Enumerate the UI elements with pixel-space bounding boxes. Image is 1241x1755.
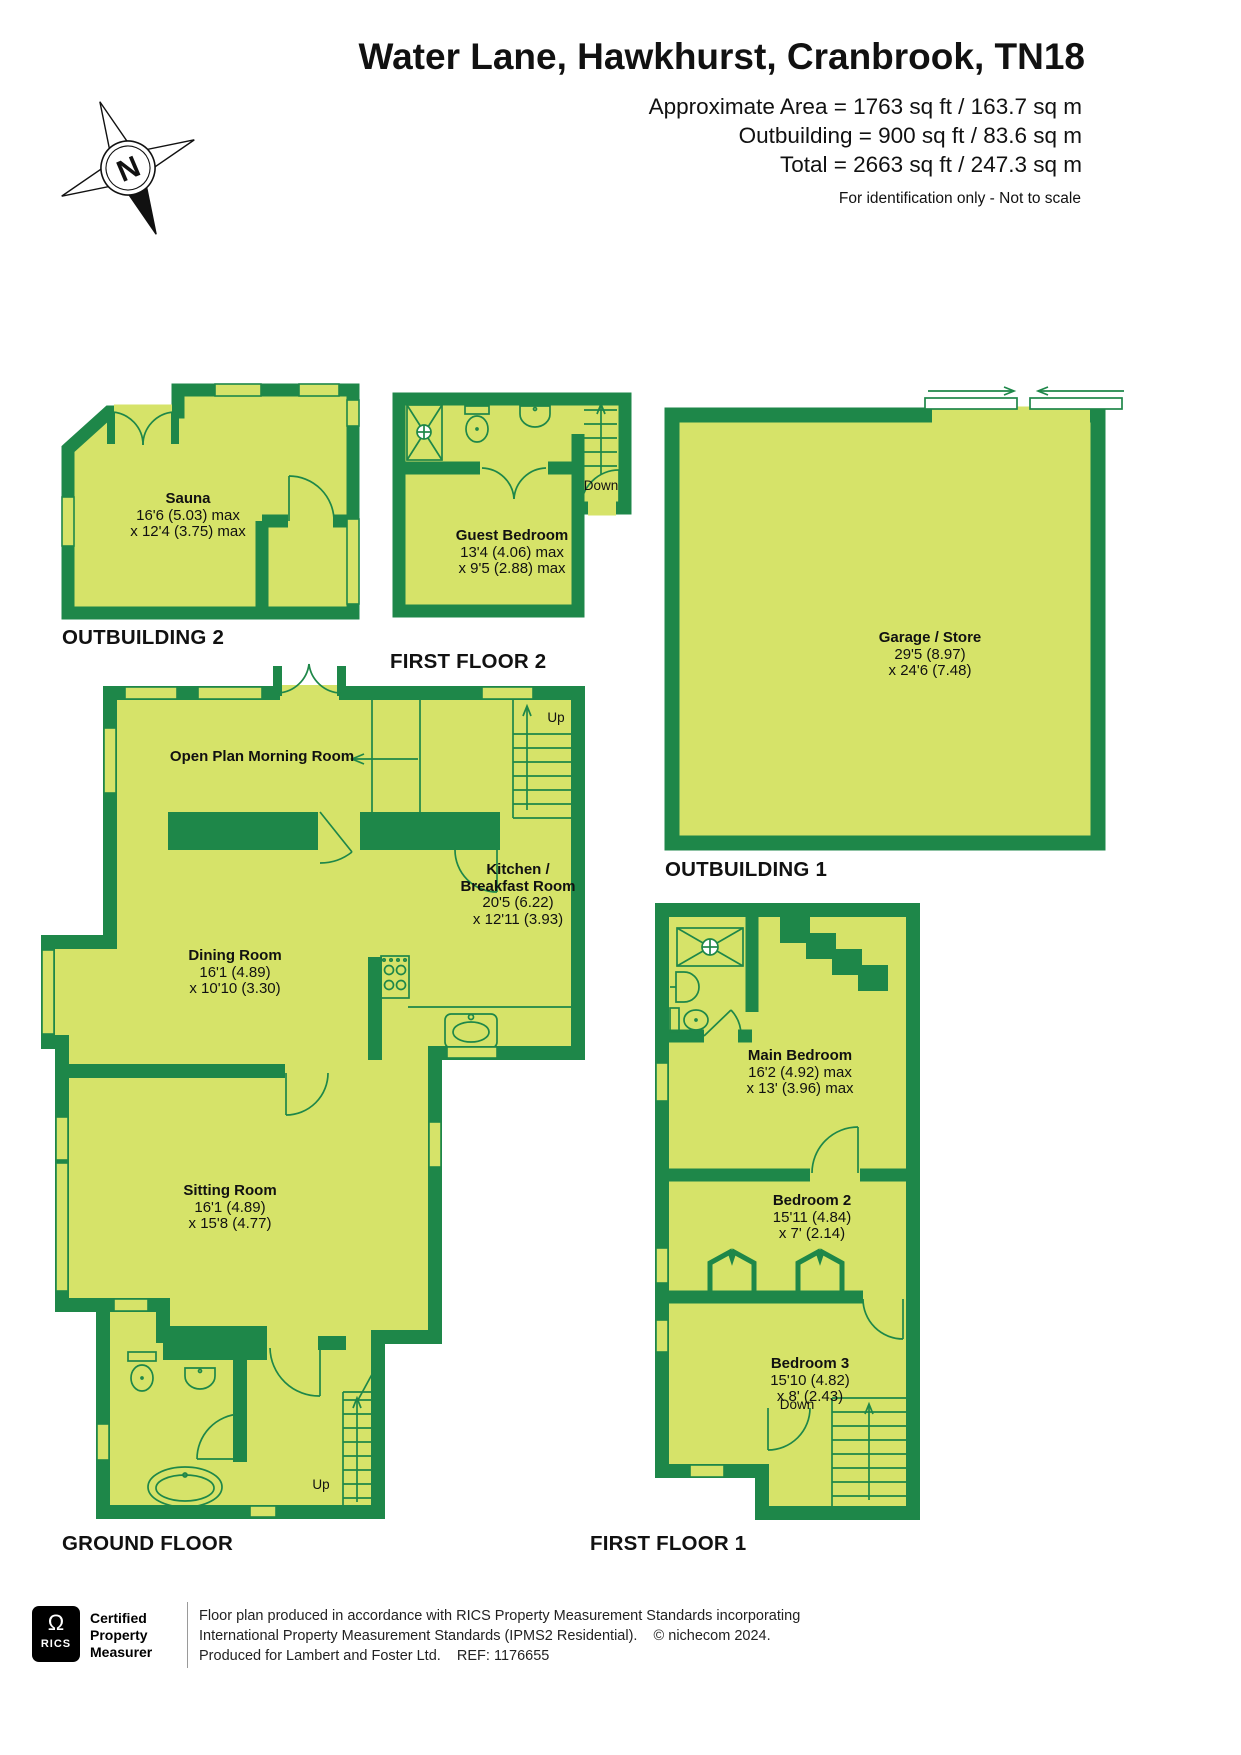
garage-door xyxy=(925,398,1017,409)
room-name: Open Plan Morning Room xyxy=(170,749,354,766)
eaves-step xyxy=(832,949,862,975)
stair-label-up-hall: Up xyxy=(312,1477,329,1492)
disclaimer-line: International Property Measurement Stand… xyxy=(199,1626,800,1646)
window xyxy=(482,687,533,699)
page-title: Water Lane, Hawkhurst, Cranbrook, TN18 xyxy=(359,36,1085,78)
room-name: Breakfast Room xyxy=(460,879,575,896)
total-area: Total = 2663 sq ft / 247.3 sq m xyxy=(649,150,1082,179)
scale-note: For identification only - Not to scale xyxy=(839,190,1081,208)
footer-disclaimer: Floor plan produced in accordance with R… xyxy=(199,1606,800,1666)
room-name: Main Bedroom xyxy=(746,1048,853,1065)
room-name: Bedroom 2 xyxy=(773,1193,851,1210)
room-dim: x 13' (3.96) max xyxy=(746,1081,853,1098)
window xyxy=(62,497,74,546)
window xyxy=(656,1248,668,1283)
room-name: Bedroom 3 xyxy=(770,1356,850,1373)
room-dim: x 15'8 (4.77) xyxy=(183,1216,276,1233)
stair-label-down-ff2: Down xyxy=(584,478,619,493)
window xyxy=(347,400,359,426)
rics-logo: Ω RICS xyxy=(32,1606,80,1662)
window xyxy=(42,950,54,1034)
chimney-breast xyxy=(163,1326,267,1360)
footer-divider xyxy=(187,1602,188,1668)
room-dim: 15'11 (4.84) xyxy=(773,1210,851,1227)
window xyxy=(447,1047,497,1058)
room-label-guest-bedroom: Guest Bedroom 13'4 (4.06) max x 9'5 (2.8… xyxy=(456,528,569,578)
disclaimer-line: Produced for Lambert and Foster Ltd. REF… xyxy=(199,1646,800,1666)
window xyxy=(656,1320,668,1352)
eaves-step xyxy=(858,965,888,991)
room-dim: 29'5 (8.97) xyxy=(879,647,982,664)
room-dim: x 9'5 (2.88) max xyxy=(456,561,569,578)
floorplan-drawing: N xyxy=(0,0,1241,1755)
window xyxy=(56,1117,68,1160)
room-name: Garage / Store xyxy=(879,630,982,647)
floor-label-outbuilding2: OUTBUILDING 2 xyxy=(62,626,224,650)
outbuilding-area: Outbuilding = 900 sq ft / 83.6 sq m xyxy=(649,121,1082,150)
approximate-area: Approximate Area = 1763 sq ft / 163.7 sq… xyxy=(649,92,1082,121)
area-summary: Approximate Area = 1763 sq ft / 163.7 sq… xyxy=(649,92,1082,179)
door-post xyxy=(337,666,346,696)
rics-lamp-icon: Ω xyxy=(32,1608,80,1638)
outbuilding1-plan xyxy=(672,387,1124,843)
first-floor2-plan xyxy=(399,399,625,611)
window xyxy=(690,1465,724,1477)
room-dim: x 12'11 (3.93) xyxy=(460,912,575,929)
floor-label-outbuilding1: OUTBUILDING 1 xyxy=(665,858,827,882)
room-dim: 16'6 (5.03) max xyxy=(130,508,245,525)
window xyxy=(125,687,177,699)
certified-line: Certified xyxy=(90,1610,152,1627)
rics-logo-text: RICS xyxy=(32,1638,80,1650)
window xyxy=(299,384,339,396)
window xyxy=(114,1299,148,1311)
room-label-garage: Garage / Store 29'5 (8.97) x 24'6 (7.48) xyxy=(879,630,982,680)
garage-door xyxy=(1030,398,1122,409)
certified-line: Measurer xyxy=(90,1644,152,1661)
room-name: Kitchen / xyxy=(460,862,575,879)
room-label-morning-room: Open Plan Morning Room xyxy=(170,749,354,766)
room-label-kitchen: Kitchen / Breakfast Room 20'5 (6.22) x 1… xyxy=(460,862,575,928)
room-label-dining: Dining Room 16'1 (4.89) x 10'10 (3.30) xyxy=(188,948,281,998)
room-dim: x 24'6 (7.48) xyxy=(879,663,982,680)
floor-label-first-floor1: FIRST FLOOR 1 xyxy=(590,1532,746,1556)
room-label-main-bedroom: Main Bedroom 16'2 (4.92) max x 13' (3.96… xyxy=(746,1048,853,1098)
room-dim: x 12'4 (3.75) max xyxy=(130,524,245,541)
floorplan-page: N xyxy=(0,0,1241,1755)
window xyxy=(215,384,261,396)
door-post xyxy=(273,666,282,696)
certified-line: Property xyxy=(90,1627,152,1644)
room-dim: 16'1 (4.89) xyxy=(183,1200,276,1217)
room-dim: 16'2 (4.92) max xyxy=(746,1065,853,1082)
window xyxy=(656,1063,668,1101)
window xyxy=(347,519,359,604)
room-label-sitting: Sitting Room 16'1 (4.89) x 15'8 (4.77) xyxy=(183,1183,276,1233)
room-name: Dining Room xyxy=(188,948,281,965)
stair-label-down-ff1: Down xyxy=(780,1397,815,1412)
room-name: Sitting Room xyxy=(183,1183,276,1200)
certified-property-measurer: Certified Property Measurer xyxy=(90,1610,152,1661)
window xyxy=(429,1122,441,1167)
window xyxy=(56,1163,68,1291)
compass-north-icon: N xyxy=(34,74,223,263)
eaves-step xyxy=(780,917,810,943)
window xyxy=(198,687,262,699)
room-dim: 20'5 (6.22) xyxy=(460,895,575,912)
door-post xyxy=(171,412,179,444)
stair-label-up-kitchen: Up xyxy=(547,710,564,725)
disclaimer-line: Floor plan produced in accordance with R… xyxy=(199,1606,800,1626)
floor-label-first-floor2: FIRST FLOOR 2 xyxy=(390,650,546,674)
window xyxy=(97,1424,109,1460)
room-dim: 13'4 (4.06) max xyxy=(456,545,569,562)
room-label-sauna: Sauna 16'6 (5.03) max x 12'4 (3.75) max xyxy=(130,491,245,541)
ground-floor-plan xyxy=(42,664,578,1517)
room-dim: 15'10 (4.82) xyxy=(770,1373,850,1390)
window xyxy=(104,728,116,793)
room-label-bedroom2: Bedroom 2 15'11 (4.84) x 7' (2.14) xyxy=(773,1193,851,1243)
floor-label-ground-floor: GROUND FLOOR xyxy=(62,1532,233,1556)
room-name: Sauna xyxy=(130,491,245,508)
room-dim: x 10'10 (3.30) xyxy=(188,981,281,998)
door-post xyxy=(107,412,115,444)
room-dim: x 7' (2.14) xyxy=(773,1226,851,1243)
eaves-step xyxy=(806,933,836,959)
room-name: Guest Bedroom xyxy=(456,528,569,545)
window xyxy=(250,1506,276,1517)
room-dim: 16'1 (4.89) xyxy=(188,965,281,982)
footer: Ω RICS Certified Property Measurer Floor… xyxy=(0,1598,1241,1678)
